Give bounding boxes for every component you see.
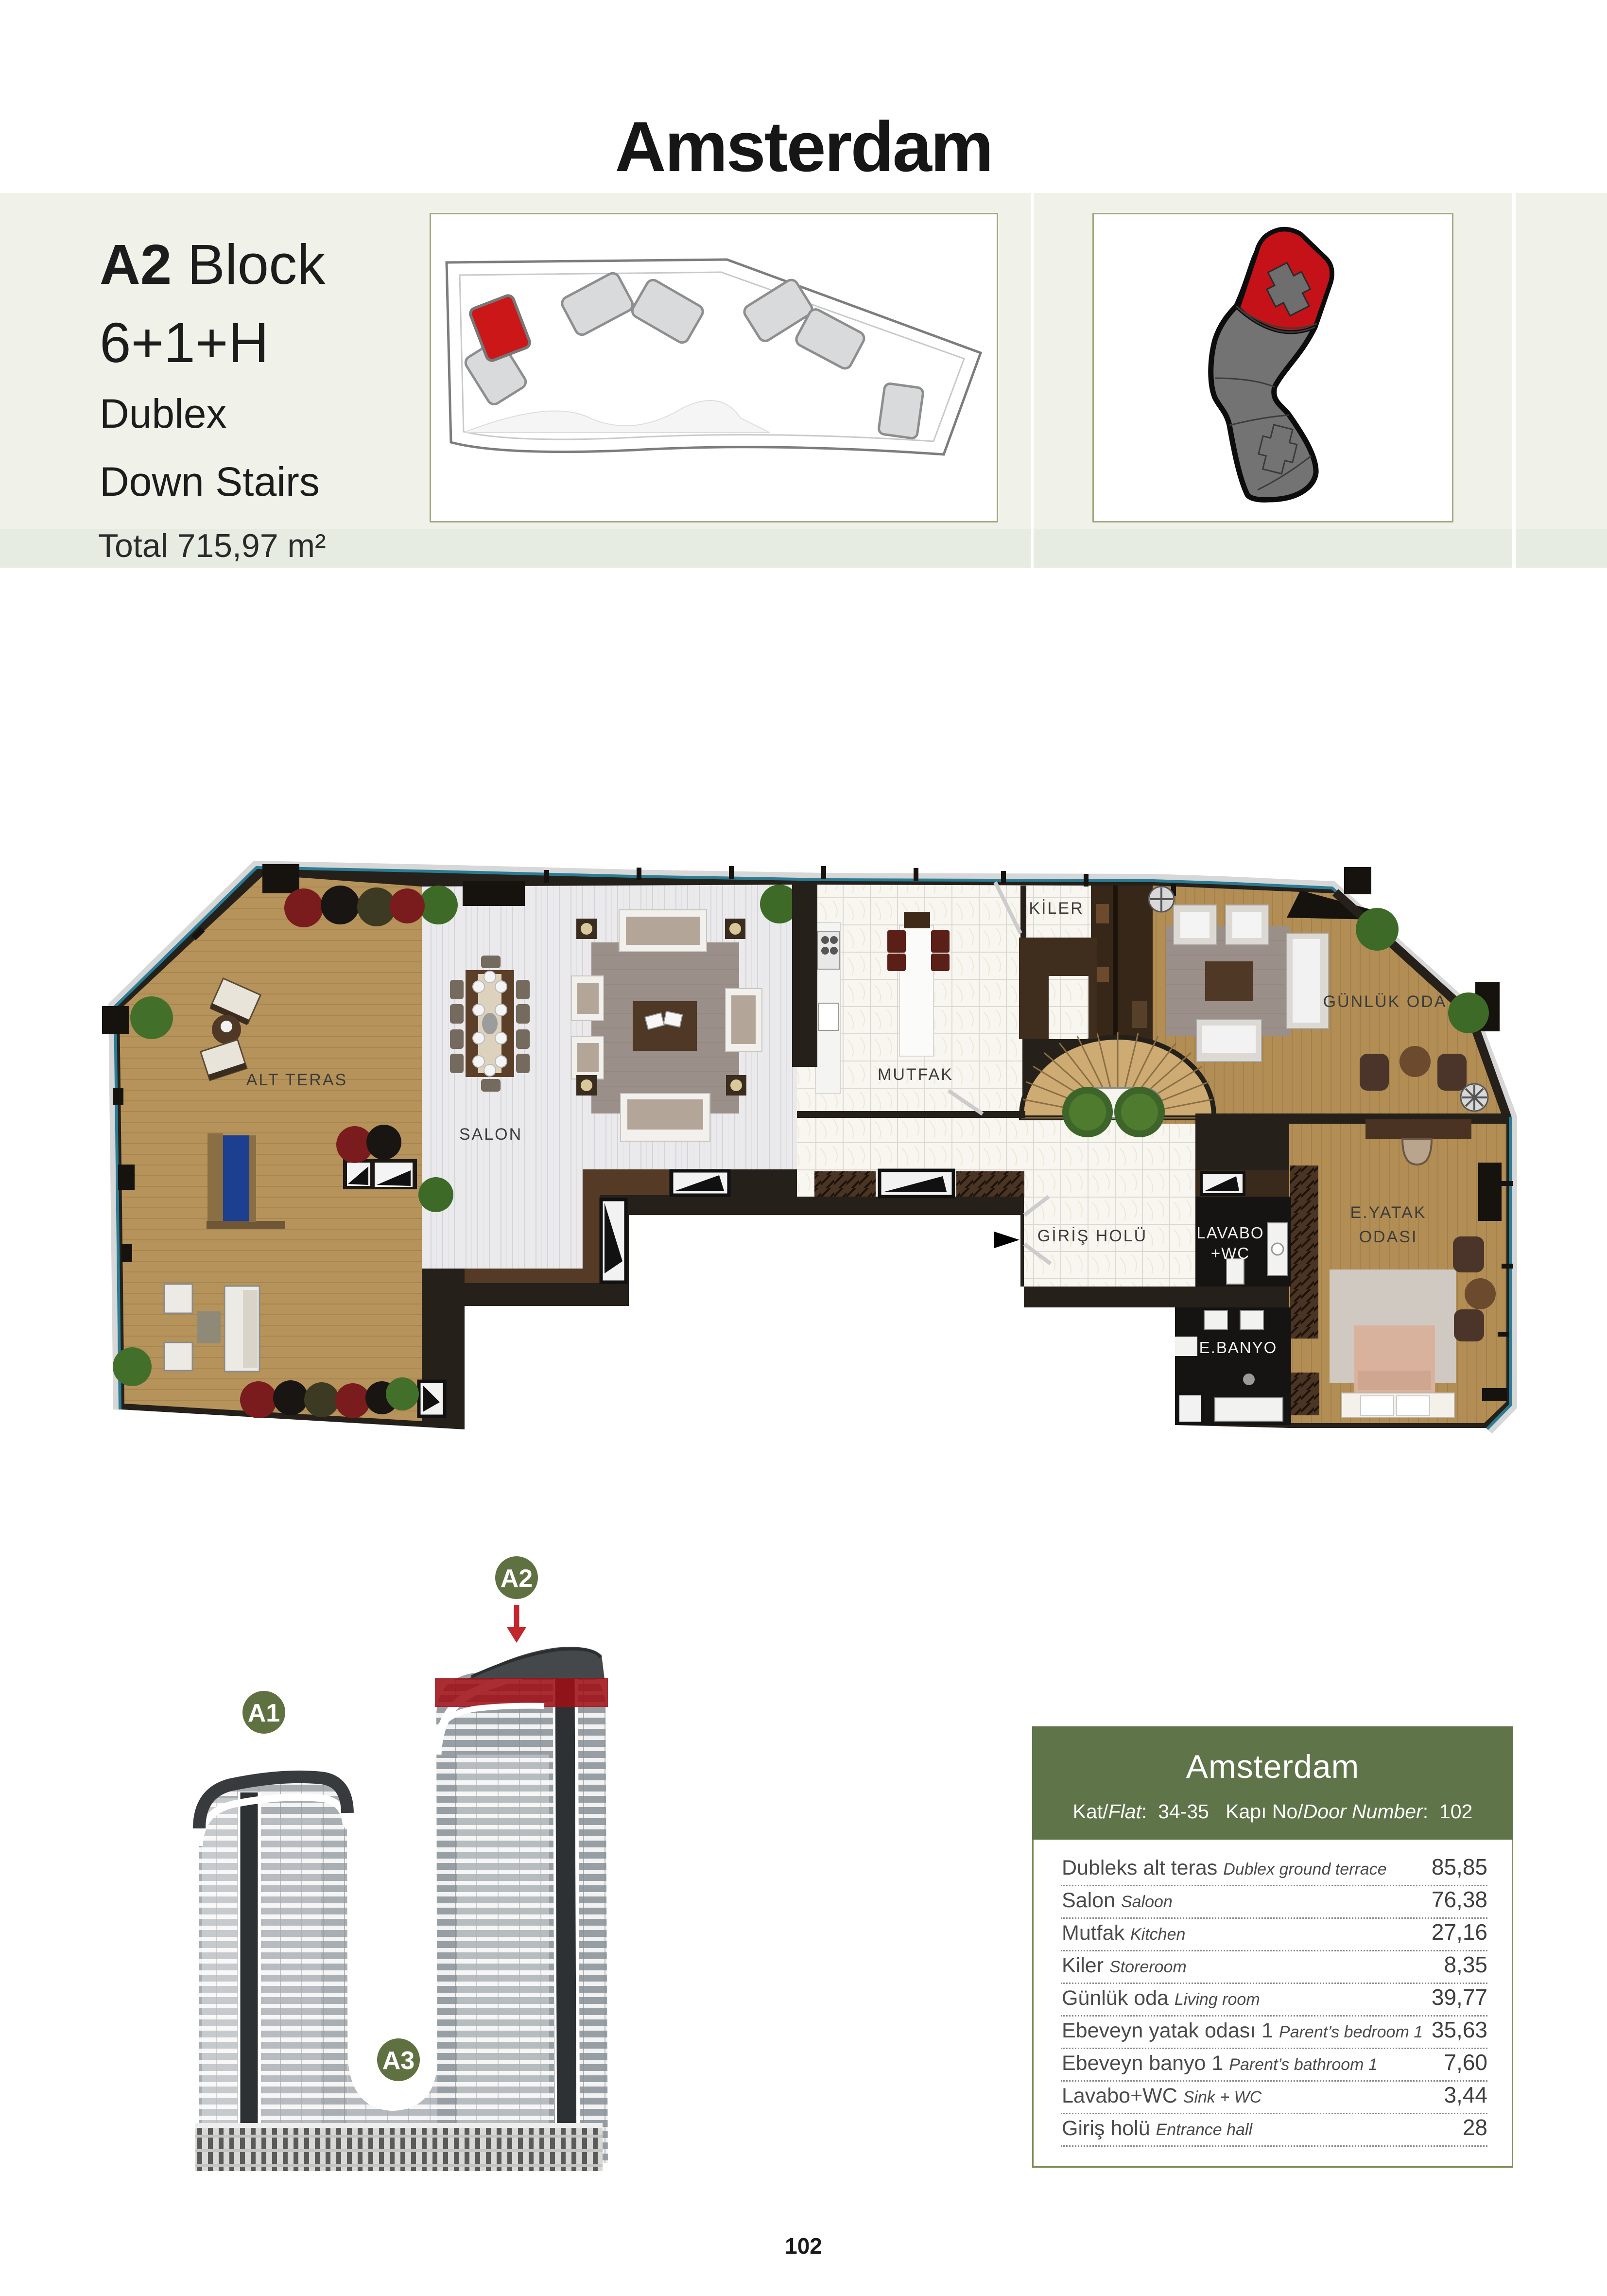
svg-text:A2: A2	[501, 1565, 533, 1593]
svg-text:MUTFAK: MUTFAK	[878, 1065, 953, 1084]
svg-text:GÜNLÜK ODA: GÜNLÜK ODA	[1323, 992, 1447, 1011]
svg-text:E.BANYO: E.BANYO	[1199, 1339, 1278, 1357]
svg-text:GİRİŞ HOLÜ: GİRİŞ HOLÜ	[1037, 1227, 1147, 1245]
svg-text:ALT TERAS: ALT TERAS	[246, 1071, 347, 1089]
svg-text:+WC: +WC	[1211, 1244, 1250, 1262]
svg-text:KİLER: KİLER	[1029, 899, 1084, 918]
svg-text:E.YATAK: E.YATAK	[1350, 1203, 1426, 1222]
svg-text:A3: A3	[382, 2047, 415, 2075]
svg-text:ODASI: ODASI	[1359, 1228, 1418, 1246]
svg-text:SALON: SALON	[459, 1125, 522, 1144]
svg-text:LAVABO: LAVABO	[1196, 1224, 1264, 1242]
svg-text:A1: A1	[248, 1699, 280, 1727]
